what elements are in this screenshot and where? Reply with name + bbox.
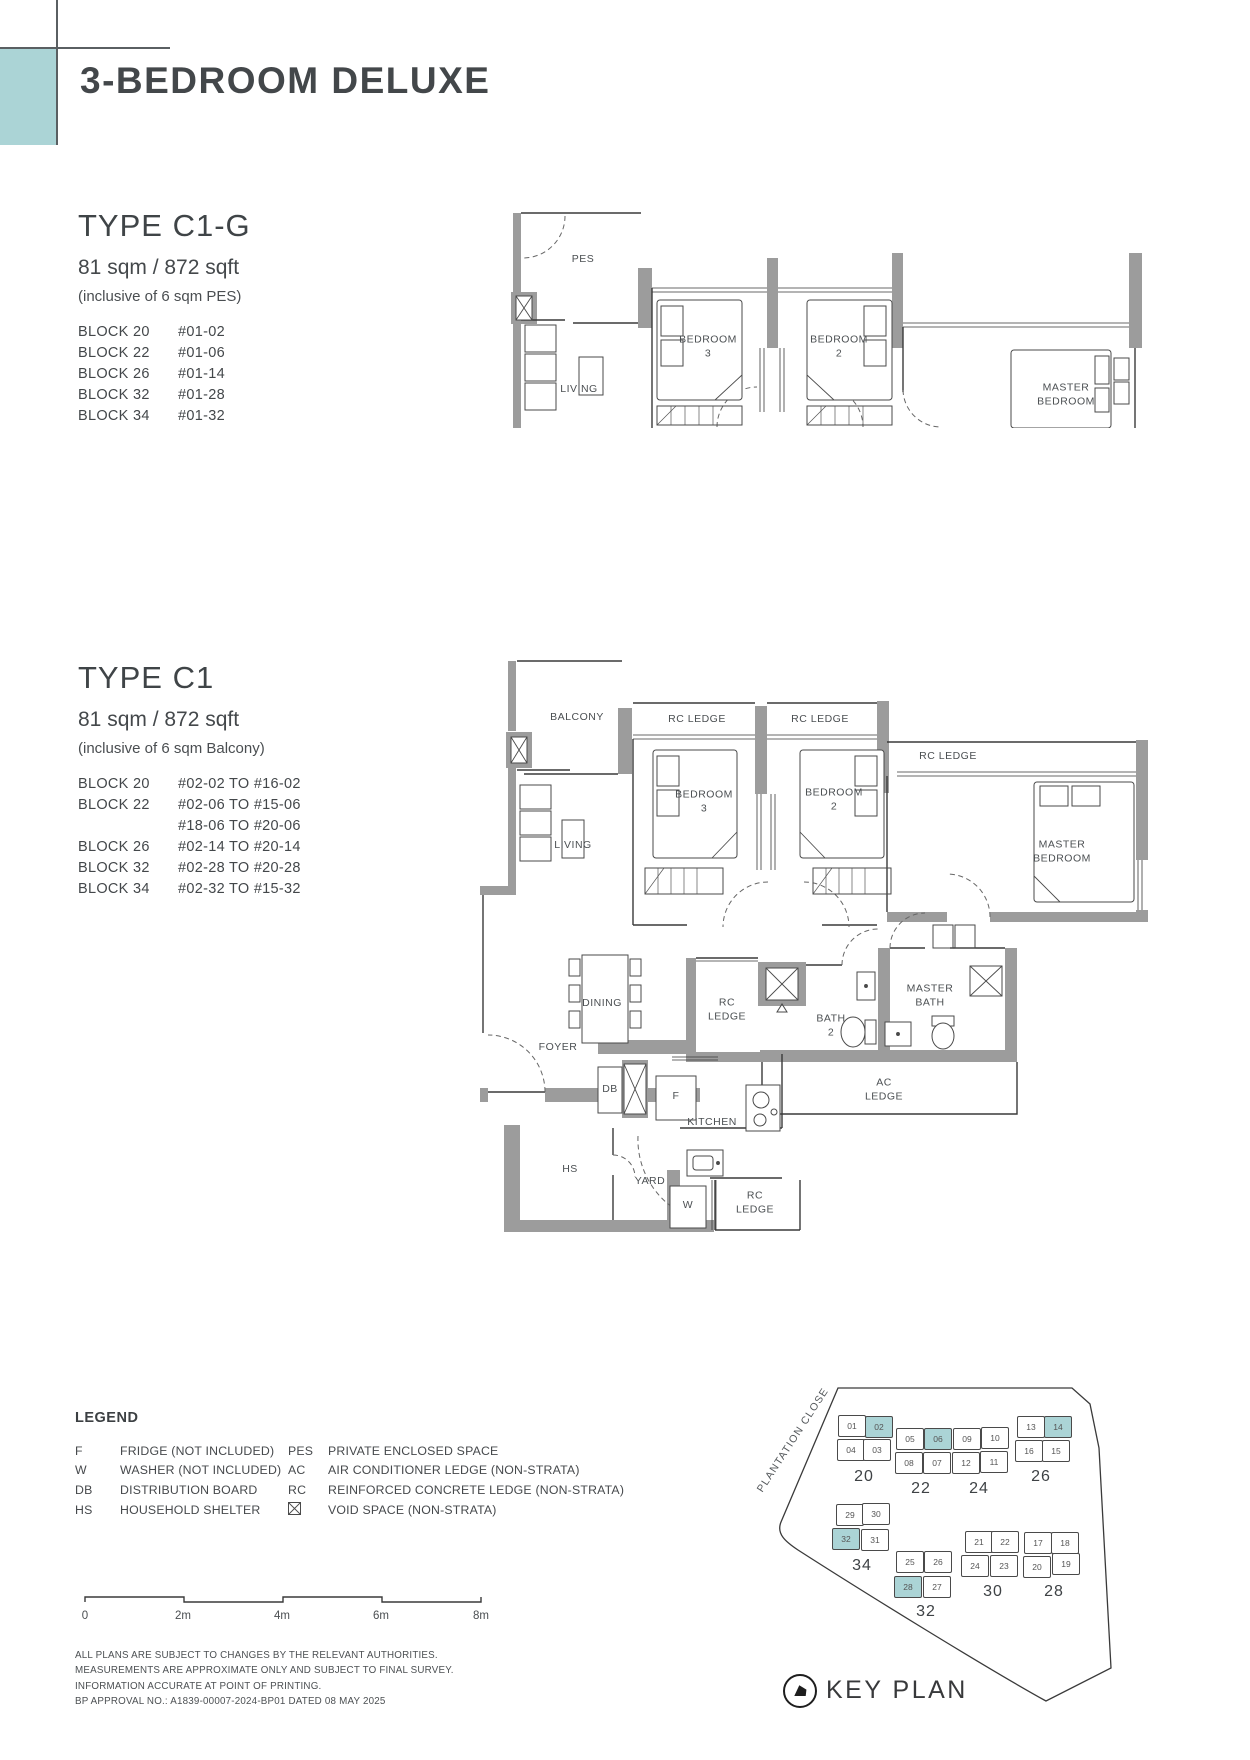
block-units: #01-02 bbox=[178, 322, 225, 343]
scale-bar-line bbox=[70, 1590, 500, 1610]
wardrobe-icon-bedroom2 bbox=[807, 406, 892, 425]
keyplan-unit: 03 bbox=[863, 1439, 891, 1461]
legend-desc: AIR CONDITIONER LEDGE (NON-STRATA) bbox=[328, 1463, 580, 1477]
block-units: #02-14 TO #20-14 bbox=[178, 837, 301, 858]
keyplan-unit: 16 bbox=[1015, 1440, 1043, 1462]
keyplan-unit: 08 bbox=[895, 1452, 923, 1474]
walls-gray bbox=[480, 661, 1148, 1232]
room-label-bath2: BATH 2 bbox=[816, 1012, 845, 1039]
block-units: #01-06 bbox=[178, 343, 225, 364]
keyplan-block-number: 20 bbox=[854, 1468, 874, 1486]
type-c1g-area: 81 sqm / 872 sqft bbox=[78, 256, 438, 280]
header-accent-square bbox=[0, 48, 57, 145]
legend-abbr: RC bbox=[288, 1483, 328, 1497]
block-units: #02-02 TO #16-02 bbox=[178, 774, 301, 795]
keyplan-unit: 06 bbox=[924, 1428, 952, 1450]
block-units: #02-32 TO #15-32 bbox=[178, 879, 301, 900]
void-space-icon bbox=[516, 296, 532, 320]
disclaimer: ALL PLANS ARE SUBJECT TO CHANGES BY THE … bbox=[75, 1648, 525, 1710]
room-label-dining: DINING bbox=[582, 997, 622, 1011]
header-horizontal-rule bbox=[0, 47, 170, 49]
block-label: BLOCK 20 bbox=[78, 322, 178, 343]
block-row: BLOCK 32#01-28 bbox=[78, 385, 438, 406]
room-label-rc-ledge: RC LEDGE bbox=[919, 750, 977, 764]
legend-desc: WASHER (NOT INCLUDED) bbox=[120, 1463, 281, 1477]
keyplan-unit: 07 bbox=[923, 1452, 951, 1474]
scale-tick-label: 2m bbox=[175, 1610, 191, 1622]
keyplan-unit: 26 bbox=[924, 1551, 952, 1573]
brochure-page: 3-BEDROOM DELUXE TYPE C1-G 81 sqm / 872 … bbox=[0, 0, 1250, 1760]
legend-abbr: W bbox=[75, 1463, 120, 1477]
floorplan-c1-drawing bbox=[450, 580, 1150, 1240]
room-label-rc-ledge-yard: RC LEDGE bbox=[736, 1189, 774, 1216]
room-label-washer: W bbox=[683, 1199, 693, 1213]
keyplan-block-number: 26 bbox=[1031, 1468, 1051, 1486]
keyplan-unit: 25 bbox=[896, 1551, 924, 1573]
scale-tick-label: 6m bbox=[373, 1610, 389, 1622]
north-logo-icon bbox=[783, 1674, 817, 1708]
keyplan-unit: 29 bbox=[836, 1504, 864, 1526]
keyplan-block-number: 22 bbox=[911, 1480, 931, 1498]
block-units: #01-14 bbox=[178, 364, 225, 385]
type-c1g-note: (inclusive of 6 sqm PES) bbox=[78, 288, 438, 305]
block-units: #02-06 TO #15-06 bbox=[178, 795, 301, 816]
walls-thin bbox=[483, 661, 1136, 1230]
legend-abbr: HS bbox=[75, 1503, 120, 1517]
legend-column-1: FFRIDGE (NOT INCLUDED) WWASHER (NOT INCL… bbox=[75, 1441, 288, 1519]
legend-desc: VOID SPACE (NON-STRATA) bbox=[328, 1503, 497, 1517]
hob-icon bbox=[746, 1085, 780, 1131]
keyplan-block-number: 34 bbox=[852, 1557, 872, 1575]
keyplan-unit: 27 bbox=[923, 1576, 951, 1598]
room-label-rc-ledge: RC LEDGE bbox=[668, 713, 726, 727]
block-units: #01-32 bbox=[178, 406, 225, 427]
scale-bar: 0 2m 4m 6m 8m bbox=[70, 1590, 500, 1635]
block-label: BLOCK 26 bbox=[78, 364, 178, 385]
scale-tick-label: 4m bbox=[274, 1610, 290, 1622]
block-row: BLOCK 20#02-02 TO #16-02 bbox=[78, 774, 438, 795]
keyplan-block-number: 28 bbox=[1044, 1583, 1064, 1601]
block-label: BLOCK 34 bbox=[78, 879, 178, 900]
block-row: BLOCK 32#02-28 TO #20-28 bbox=[78, 858, 438, 879]
legend-abbr: AC bbox=[288, 1463, 328, 1477]
legend-heading: LEGEND bbox=[75, 1410, 695, 1426]
wardrobe-icon-bedroom3 bbox=[657, 406, 742, 425]
living-cabinet-icon bbox=[525, 325, 603, 410]
legend-desc: DISTRIBUTION BOARD bbox=[120, 1483, 258, 1497]
block-row: BLOCK 34#01-32 bbox=[78, 406, 438, 427]
keyplan-block-number: 24 bbox=[969, 1480, 989, 1498]
keyplan-unit: 15 bbox=[1042, 1440, 1070, 1462]
legend-column-2: PESPRIVATE ENCLOSED SPACE ACAIR CONDITIO… bbox=[288, 1441, 624, 1519]
type-c1-note: (inclusive of 6 sqm Balcony) bbox=[78, 740, 438, 757]
keyplan-unit: 17 bbox=[1024, 1532, 1052, 1554]
keyplan-unit: 10 bbox=[981, 1427, 1009, 1449]
section-type-c1: TYPE C1 81 sqm / 872 sqft (inclusive of … bbox=[78, 660, 438, 900]
room-label-rc-ledge: RC LEDGE bbox=[791, 713, 849, 727]
room-label-kitchen: KITCHEN bbox=[687, 1116, 737, 1130]
legend-desc: REINFORCED CONCRETE LEDGE (NON-STRATA) bbox=[328, 1483, 624, 1497]
keyplan-unit: 32 bbox=[832, 1528, 860, 1550]
void-space-icon bbox=[288, 1502, 328, 1518]
keyplan-unit: 19 bbox=[1052, 1553, 1080, 1575]
block-label: BLOCK 32 bbox=[78, 858, 178, 879]
type-c1-name: TYPE C1 bbox=[78, 660, 438, 696]
legend-row: HSHOUSEHOLD SHELTER bbox=[75, 1500, 288, 1520]
legend-row: VOID SPACE (NON-STRATA) bbox=[288, 1500, 624, 1520]
room-label-ac-ledge: AC LEDGE bbox=[865, 1076, 903, 1103]
room-label-yard: YARD bbox=[635, 1175, 665, 1189]
bath2-vanity-icon bbox=[857, 972, 875, 1000]
room-label-bedroom3: BEDROOM 3 bbox=[679, 333, 737, 360]
disclaimer-line: INFORMATION ACCURATE AT POINT OF PRINTIN… bbox=[75, 1679, 525, 1694]
void-shaft-icon bbox=[624, 1064, 646, 1114]
room-label-hs: HS bbox=[562, 1163, 578, 1177]
legend-abbr: DB bbox=[75, 1483, 120, 1497]
keyplan-unit: 21 bbox=[965, 1531, 993, 1553]
room-label-bedroom3: BEDROOM 3 bbox=[675, 788, 733, 815]
header-vertical-rule bbox=[56, 0, 58, 145]
room-label-living: LIVING bbox=[554, 839, 591, 853]
legend-row: FFRIDGE (NOT INCLUDED) bbox=[75, 1441, 288, 1461]
block-row: BLOCK 20#01-02 bbox=[78, 322, 438, 343]
keyplan-unit: 22 bbox=[991, 1531, 1019, 1553]
wardrobe-icon-bedroom2 bbox=[813, 868, 891, 894]
keyplan-unit: 11 bbox=[980, 1451, 1008, 1473]
keyplan-unit: 30 bbox=[862, 1503, 890, 1525]
keyplan-block-number: 30 bbox=[983, 1583, 1003, 1601]
legend-row: PESPRIVATE ENCLOSED SPACE bbox=[288, 1441, 624, 1461]
block-label: BLOCK 34 bbox=[78, 406, 178, 427]
master-bath-toilet-icon bbox=[932, 1016, 954, 1049]
block-units: #02-28 TO #20-28 bbox=[178, 858, 301, 879]
keyplan-unit: 05 bbox=[896, 1428, 924, 1450]
bath2-toilet-icon bbox=[841, 1017, 876, 1047]
room-label-balcony: BALCONY bbox=[550, 711, 604, 725]
keyplan-unit: 02 bbox=[865, 1416, 893, 1438]
wardrobe-icon-master bbox=[1114, 358, 1129, 404]
legend-desc: HOUSEHOLD SHELTER bbox=[120, 1503, 261, 1517]
disclaimer-line: ALL PLANS ARE SUBJECT TO CHANGES BY THE … bbox=[75, 1648, 525, 1663]
room-label-foyer: FOYER bbox=[539, 1041, 578, 1055]
block-units: #01-28 bbox=[178, 385, 225, 406]
wardrobe-icon-master bbox=[933, 925, 975, 948]
keyplan-unit: 09 bbox=[953, 1428, 981, 1450]
legend-row: ACAIR CONDITIONER LEDGE (NON-STRATA) bbox=[288, 1461, 624, 1481]
keyplan-unit: 24 bbox=[961, 1555, 989, 1577]
block-row: BLOCK 22#01-06 bbox=[78, 343, 438, 364]
room-label-fridge: F bbox=[673, 1090, 680, 1104]
block-label: BLOCK 26 bbox=[78, 837, 178, 858]
keyplan-unit: 18 bbox=[1051, 1532, 1079, 1554]
legend: LEGEND FFRIDGE (NOT INCLUDED) WWASHER (N… bbox=[75, 1410, 695, 1519]
type-c1-block-list: BLOCK 20#02-02 TO #16-02 BLOCK 22#02-06 … bbox=[78, 774, 438, 900]
keyplan-unit: 20 bbox=[1023, 1556, 1051, 1578]
room-label-bedroom2: BEDROOM 2 bbox=[810, 333, 868, 360]
key-plan: PLANTATION CLOSE 01 02 04 03 20 05 06 08… bbox=[690, 1335, 1250, 1760]
block-row: BLOCK 26#01-14 bbox=[78, 364, 438, 385]
legend-abbr: PES bbox=[288, 1444, 328, 1458]
floorplan-c1g: PES LIVING BEDROOM 3 BEDROOM 2 MASTER BE… bbox=[455, 180, 1145, 428]
legend-desc: PRIVATE ENCLOSED SPACE bbox=[328, 1444, 498, 1458]
wardrobe-icon-bedroom3 bbox=[645, 868, 723, 894]
block-units: #18-06 TO #20-06 bbox=[178, 816, 301, 837]
block-row: BLOCK 26#02-14 TO #20-14 bbox=[78, 837, 438, 858]
scale-tick-label: 8m bbox=[473, 1610, 489, 1622]
block-row: BLOCK 22#02-06 TO #15-06 bbox=[78, 795, 438, 816]
room-label-db: DB bbox=[602, 1083, 618, 1097]
room-label-pes: PES bbox=[572, 253, 595, 267]
section-type-c1g: TYPE C1-G 81 sqm / 872 sqft (inclusive o… bbox=[78, 208, 438, 427]
room-label-living: LIVING bbox=[560, 383, 597, 397]
keyplan-unit: 23 bbox=[990, 1555, 1018, 1577]
block-label: BLOCK 22 bbox=[78, 343, 178, 364]
block-label: BLOCK 22 bbox=[78, 795, 178, 816]
keyplan-unit: 14 bbox=[1044, 1416, 1072, 1438]
page-title: 3-BEDROOM DELUXE bbox=[80, 60, 490, 102]
void-space-icon bbox=[511, 737, 527, 763]
scale-tick-label: 0 bbox=[82, 1610, 88, 1622]
floorplan-c1: BALCONY RC LEDGE RC LEDGE RC LEDGE BEDRO… bbox=[450, 580, 1150, 1240]
kitchen-sink-icon bbox=[687, 1150, 723, 1176]
keyplan-block-number: 32 bbox=[916, 1603, 936, 1621]
keyplan-unit: 12 bbox=[952, 1452, 980, 1474]
legend-row: DBDISTRIBUTION BOARD bbox=[75, 1480, 288, 1500]
block-row: BLOCK 34#02-32 TO #15-32 bbox=[78, 879, 438, 900]
disclaimer-line: MEASUREMENTS ARE APPROXIMATE ONLY AND SU… bbox=[75, 1663, 525, 1678]
legend-abbr: F bbox=[75, 1444, 120, 1458]
keyplan-unit: 04 bbox=[837, 1439, 865, 1461]
room-label-master-bedroom: MASTER BEDROOM bbox=[1033, 838, 1091, 865]
type-c1g-name: TYPE C1-G bbox=[78, 208, 438, 244]
block-label: BLOCK 20 bbox=[78, 774, 178, 795]
keyplan-unit: 28 bbox=[894, 1576, 922, 1598]
room-label-rc-ledge-mid: RC LEDGE bbox=[708, 996, 746, 1023]
room-label-master-bath: MASTER BATH bbox=[907, 982, 954, 1009]
legend-row: WWASHER (NOT INCLUDED) bbox=[75, 1461, 288, 1481]
keyplan-title: KEY PLAN bbox=[826, 1676, 968, 1705]
keyplan-unit: 13 bbox=[1017, 1416, 1045, 1438]
legend-row: RCREINFORCED CONCRETE LEDGE (NON-STRATA) bbox=[288, 1480, 624, 1500]
keyplan-unit: 31 bbox=[861, 1529, 889, 1551]
legend-desc: FRIDGE (NOT INCLUDED) bbox=[120, 1444, 274, 1458]
room-label-bedroom2: BEDROOM 2 bbox=[805, 786, 863, 813]
type-c1-area: 81 sqm / 872 sqft bbox=[78, 708, 438, 732]
room-label-master-bedroom: MASTER BEDROOM bbox=[1037, 381, 1095, 408]
type-c1g-block-list: BLOCK 20#01-02 BLOCK 22#01-06 BLOCK 26#0… bbox=[78, 322, 438, 427]
block-label: BLOCK 32 bbox=[78, 385, 178, 406]
shower-icon bbox=[970, 966, 1002, 996]
keyplan-unit: 01 bbox=[838, 1415, 866, 1437]
master-bath-vanity-icon bbox=[885, 1022, 911, 1046]
block-row: #18-06 TO #20-06 bbox=[78, 816, 438, 837]
disclaimer-line: BP APPROVAL NO.: A1839-00007-2024-BP01 D… bbox=[75, 1694, 525, 1709]
block-label bbox=[78, 816, 178, 837]
